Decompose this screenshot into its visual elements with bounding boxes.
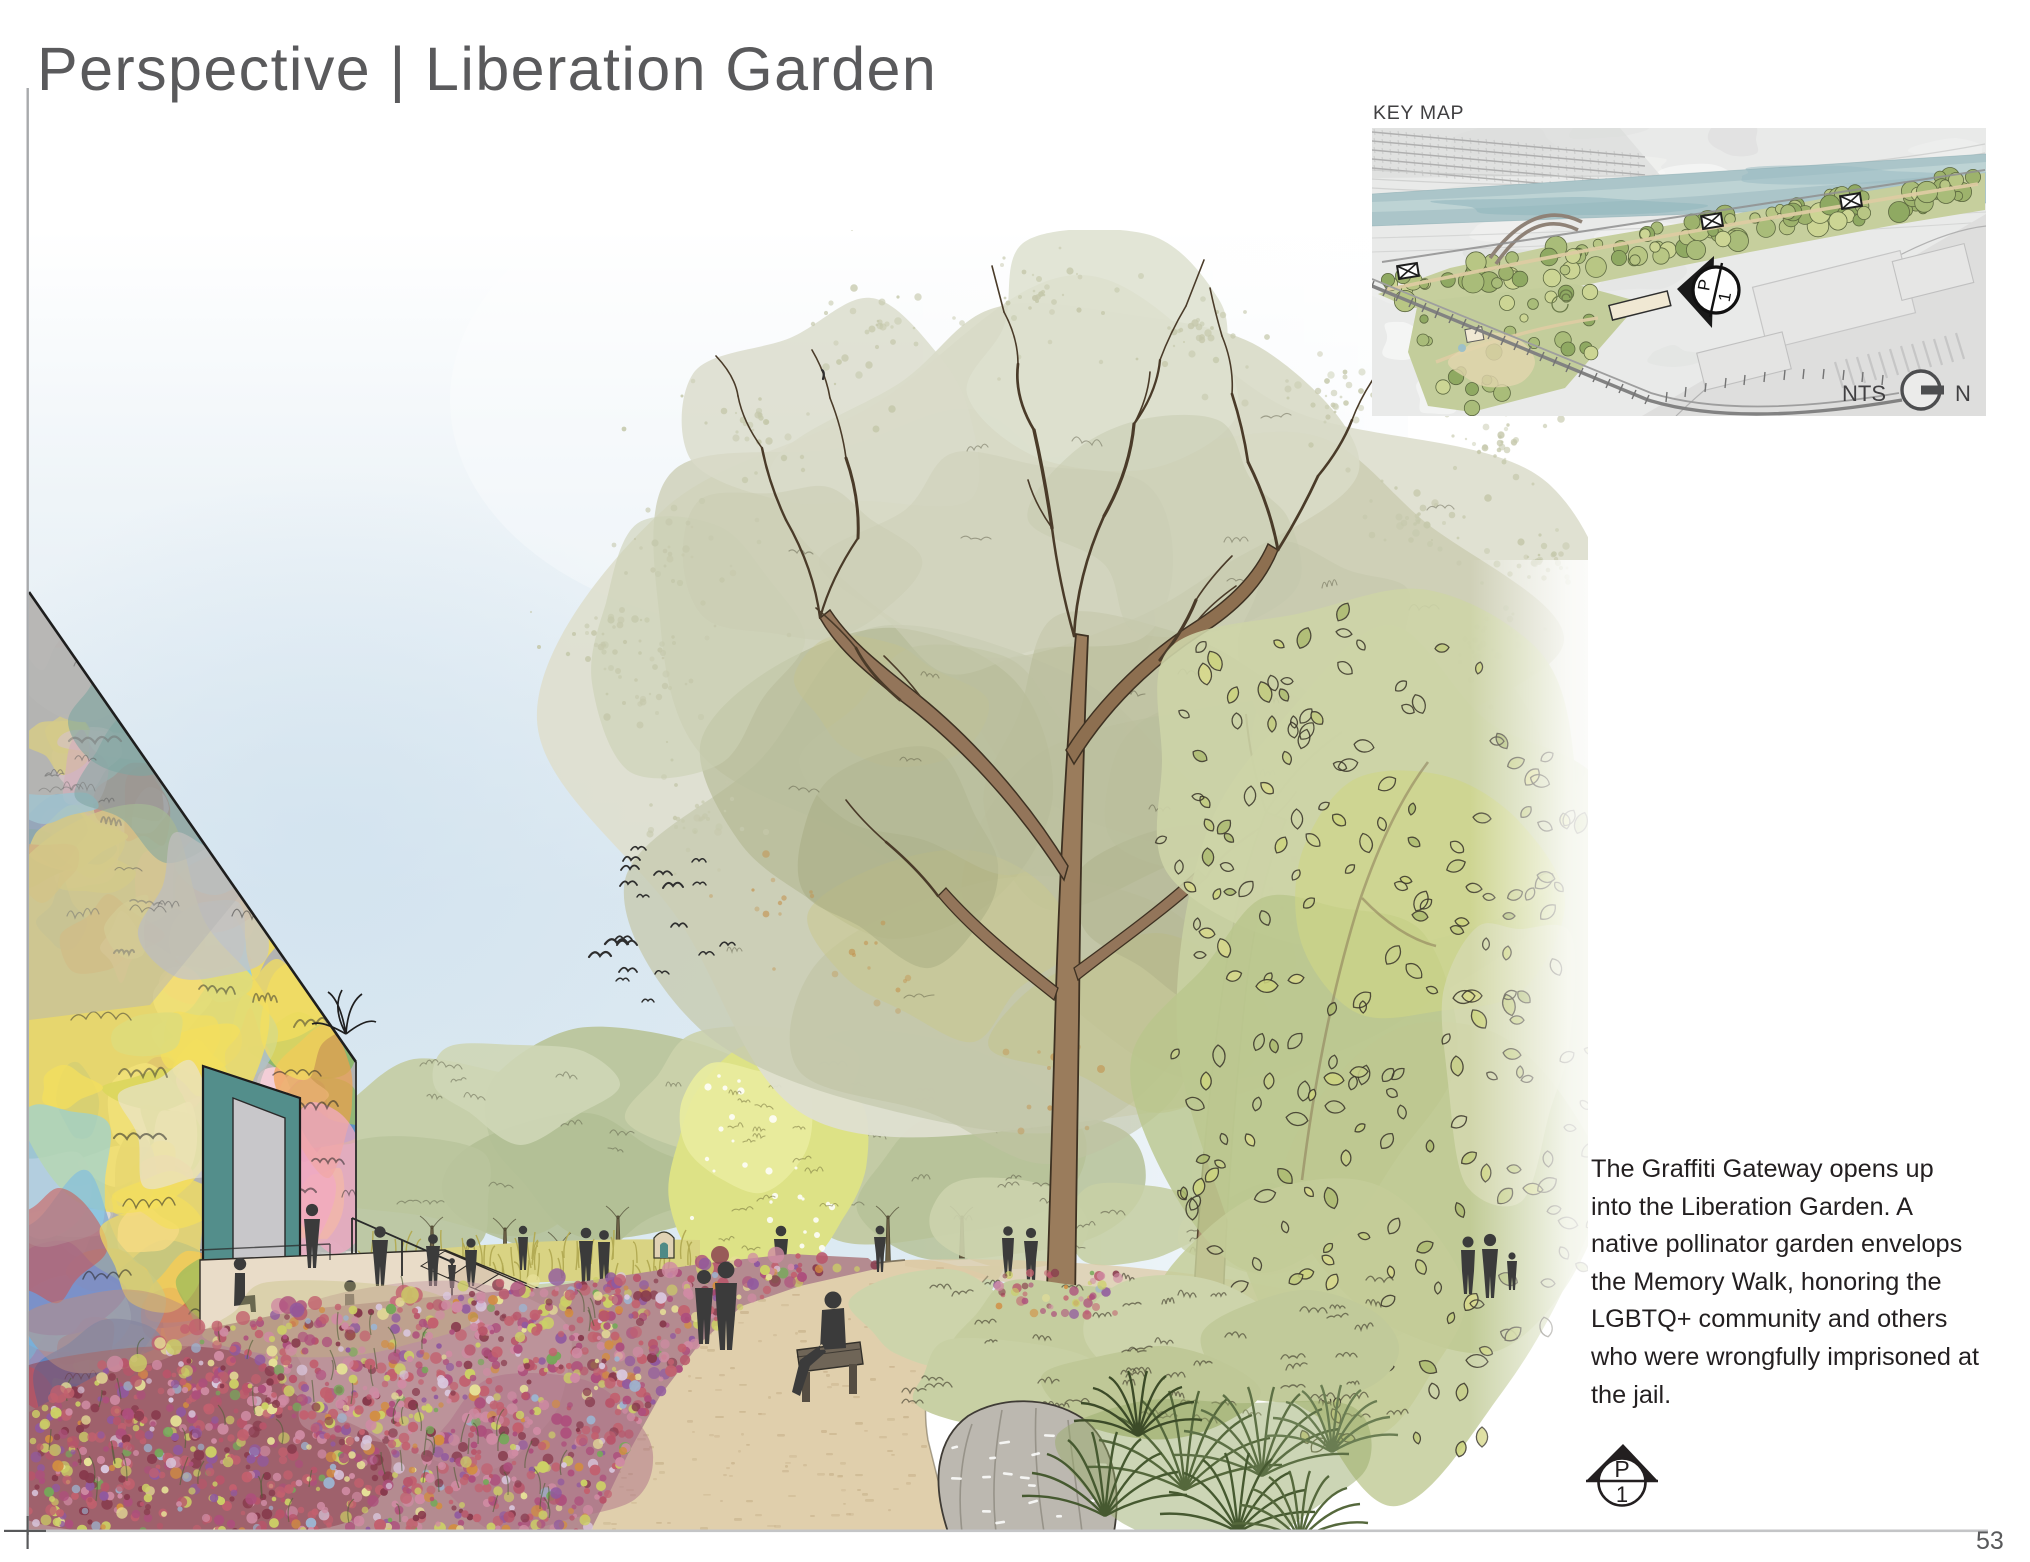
svg-text:P: P (1614, 1456, 1629, 1482)
svg-text:1: 1 (1616, 1482, 1628, 1507)
